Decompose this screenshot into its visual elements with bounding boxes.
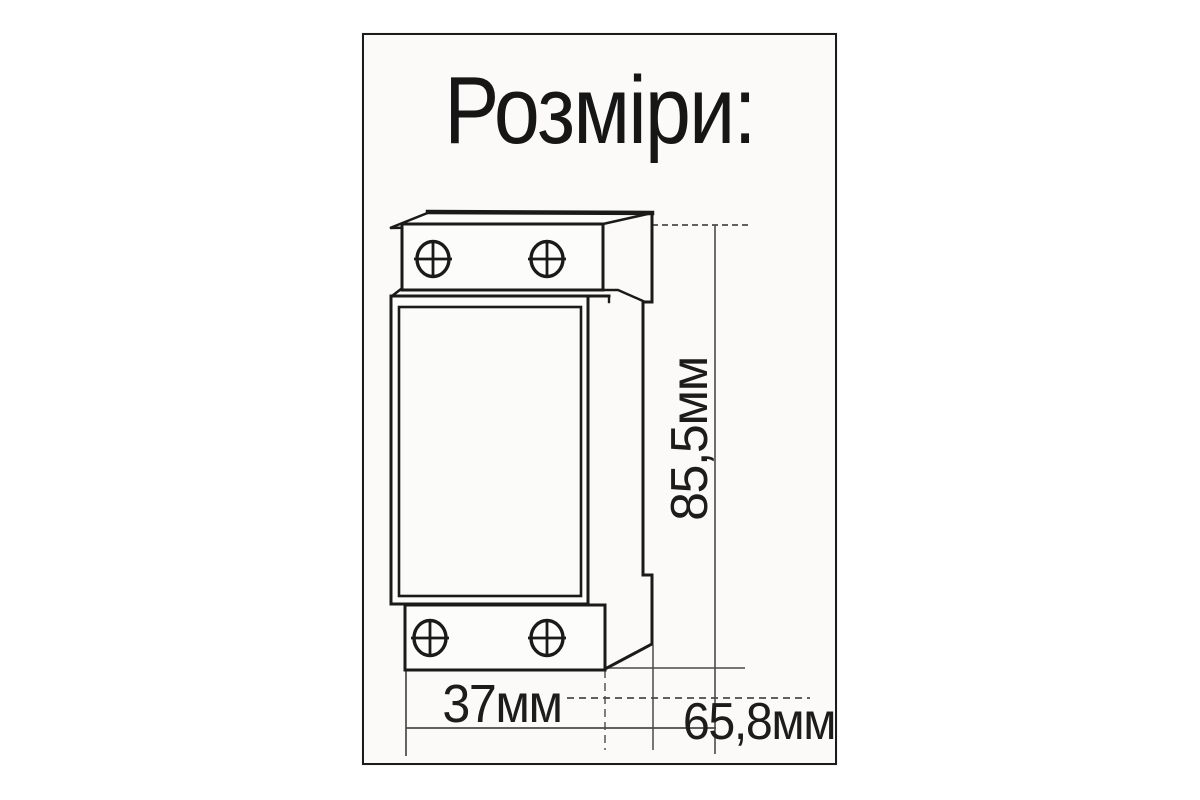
page: Розміри:	[0, 0, 1200, 800]
technical-drawing	[364, 35, 835, 763]
side-profile	[605, 213, 652, 669]
height-dimension-label: 85,5мм	[660, 357, 720, 521]
front-panel-window	[399, 307, 581, 596]
width-dimension-label: 37мм	[442, 673, 561, 735]
device-outline	[390, 212, 652, 670]
dimensions-card-content: Розміри:	[364, 35, 835, 763]
dimensions-card: Розміри:	[362, 33, 837, 765]
depth-dimension-label: 65,8мм	[683, 692, 835, 752]
